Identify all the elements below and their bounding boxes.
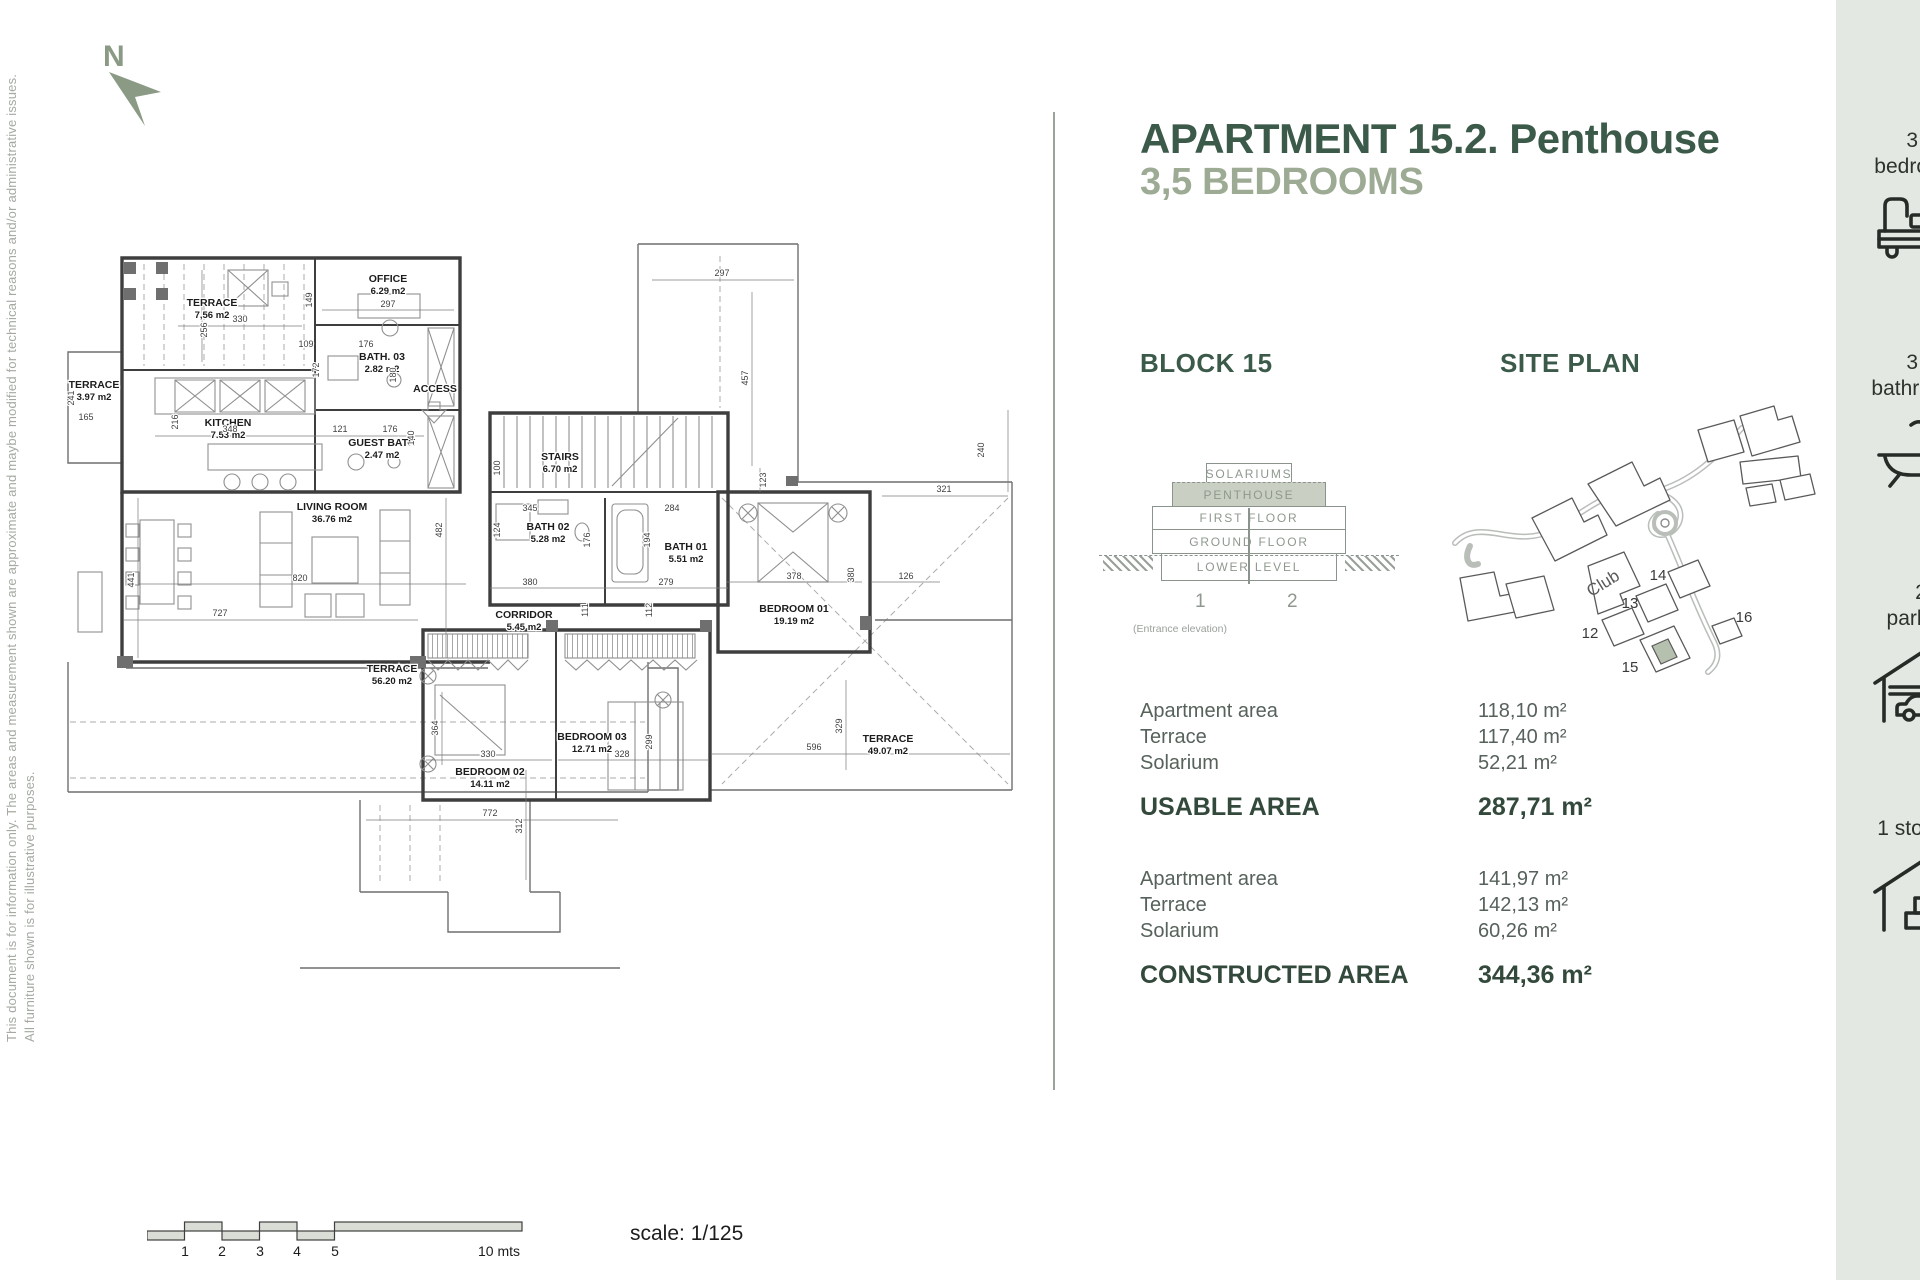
svg-text:194: 194 xyxy=(642,532,652,547)
svg-text:364: 364 xyxy=(430,720,440,735)
svg-text:140: 140 xyxy=(406,430,416,445)
storage-icon xyxy=(1869,854,1920,938)
table-row: Solarium 60,26 m² xyxy=(1140,918,1640,944)
scale-bar: 1234510 mts xyxy=(147,1208,547,1264)
site-roads xyxy=(1455,428,1742,672)
row-value: 117,40 m² xyxy=(1478,726,1567,749)
total-label: USABLE AREA xyxy=(1140,793,1478,822)
table-row: Apartment area 118,10 m² xyxy=(1140,698,1640,724)
svg-text:100: 100 xyxy=(492,460,502,475)
svg-text:380: 380 xyxy=(522,577,537,587)
row-value: 142,13 m² xyxy=(1478,894,1568,917)
svg-text:16: 16 xyxy=(1736,609,1753,626)
bathrooms-count: 3,5 xyxy=(1836,350,1920,376)
svg-text:123: 123 xyxy=(758,472,768,487)
north-arrow-icon xyxy=(109,72,161,126)
svg-text:15: 15 xyxy=(1622,659,1639,676)
parking-word: parking xyxy=(1836,606,1920,632)
row-label: Apartment area xyxy=(1140,868,1478,891)
svg-text:279: 279 xyxy=(658,577,673,587)
svg-text:BATH 01: BATH 01 xyxy=(665,541,708,553)
svg-text:256: 256 xyxy=(199,322,209,337)
svg-text:328: 328 xyxy=(614,749,629,759)
svg-text:BEDROOM 02: BEDROOM 02 xyxy=(455,766,525,778)
svg-text:56.20 m2: 56.20 m2 xyxy=(372,676,412,687)
scale-tick-labels: 1234510 mts xyxy=(181,1243,520,1259)
svg-text:5.45 m2: 5.45 m2 xyxy=(507,622,542,633)
svg-text:441: 441 xyxy=(126,572,136,587)
disclaimer-line-1: This document is for information only. T… xyxy=(4,74,19,1042)
bedrooms-count: 3,5 xyxy=(1836,128,1920,154)
svg-text:297: 297 xyxy=(380,299,395,309)
feature-bedrooms: 3,5 bedrooms xyxy=(1836,128,1920,264)
svg-text:5.51 m2: 5.51 m2 xyxy=(669,554,704,565)
svg-text:5: 5 xyxy=(331,1243,339,1259)
dimension-labels: 2563301492971091761721802163481211761402… xyxy=(66,268,986,834)
floor-plan: TERRACE7,56 m2OFFICE6.29 m2BATH. 032.82 … xyxy=(60,230,1040,1010)
svg-text:14: 14 xyxy=(1650,567,1667,584)
north-label: N xyxy=(103,40,125,73)
row-value: 52,21 m² xyxy=(1478,752,1557,775)
column-divider xyxy=(1053,112,1055,1090)
interior-walls xyxy=(122,258,728,800)
scale-ratio-text: scale: 1/125 xyxy=(630,1222,743,1246)
row-label: Terrace xyxy=(1140,726,1478,749)
svg-text:36.76 m2: 36.76 m2 xyxy=(312,514,352,525)
total-value: 344,36 m² xyxy=(1478,961,1592,990)
svg-text:312: 312 xyxy=(514,818,524,833)
svg-text:284: 284 xyxy=(664,503,679,513)
svg-text:CORRIDOR: CORRIDOR xyxy=(495,609,553,621)
row-label: Solarium xyxy=(1140,920,1478,943)
svg-text:345: 345 xyxy=(522,503,537,513)
svg-text:176: 176 xyxy=(358,339,373,349)
svg-text:10 mts: 10 mts xyxy=(478,1243,520,1259)
bed-icon xyxy=(1869,193,1920,259)
disclaimer-line-2: All furniture shown is for illustrative … xyxy=(22,771,37,1042)
svg-text:2.47 m2: 2.47 m2 xyxy=(365,450,400,461)
svg-text:457: 457 xyxy=(740,370,750,385)
constructed-area-total: CONSTRUCTED AREA 344,36 m² xyxy=(1140,958,1640,992)
row-value: 60,26 m² xyxy=(1478,920,1557,943)
svg-text:111: 111 xyxy=(580,603,590,617)
page: This document is for information only. T… xyxy=(0,0,1920,1280)
bedrooms-word: bedrooms xyxy=(1836,154,1920,180)
svg-text:TERRACE: TERRACE xyxy=(367,663,418,675)
scale-bar-segments xyxy=(147,1222,522,1240)
site-plan-map: Club1413121516 xyxy=(1440,388,1820,688)
block-elevation-diagram: SOLARIUMS PENTHOUSE FIRST FLOOR GROUND F… xyxy=(1099,463,1399,648)
elevation-caption: (Entrance elevation) xyxy=(1133,623,1227,635)
svg-text:6.70 m2: 6.70 m2 xyxy=(543,464,578,475)
svg-text:299: 299 xyxy=(644,734,654,749)
svg-text:14.11 m2: 14.11 m2 xyxy=(470,779,510,790)
svg-text:165: 165 xyxy=(78,412,93,422)
north-arrow: N xyxy=(95,34,185,130)
svg-text:1: 1 xyxy=(181,1243,189,1259)
parking-label: 2 parking xyxy=(1836,580,1920,633)
svg-text:BATH 02: BATH 02 xyxy=(527,521,570,533)
svg-text:149: 149 xyxy=(304,292,314,307)
level-penthouse: PENTHOUSE xyxy=(1172,482,1326,507)
row-label: Terrace xyxy=(1140,894,1478,917)
total-value: 287,71 m² xyxy=(1478,793,1592,822)
svg-text:12: 12 xyxy=(1582,625,1599,642)
bathrooms-word: bathrooms xyxy=(1836,376,1920,402)
svg-text:124: 124 xyxy=(492,522,502,537)
row-value: 118,10 m² xyxy=(1478,700,1567,723)
svg-text:330: 330 xyxy=(232,314,247,324)
site-plan-heading: SITE PLAN xyxy=(1500,348,1640,379)
furniture xyxy=(78,270,847,790)
svg-text:LIVING ROOM: LIVING ROOM xyxy=(297,501,368,513)
constructed-area-table: Apartment area 141,97 m² Terrace 142,13 … xyxy=(1140,866,1640,992)
svg-text:329: 329 xyxy=(834,718,844,733)
svg-text:380: 380 xyxy=(846,567,856,582)
svg-text:STAIRS: STAIRS xyxy=(541,451,579,463)
svg-text:5.28 m2: 5.28 m2 xyxy=(531,534,566,545)
dimension-lines xyxy=(124,270,1010,880)
svg-text:180: 180 xyxy=(388,367,398,382)
usable-area-total: USABLE AREA 287,71 m² xyxy=(1140,790,1640,824)
svg-text:176: 176 xyxy=(382,424,397,434)
feature-storage: 1 storage xyxy=(1836,816,1920,943)
title-block: APARTMENT 15.2. Penthouse 3,5 BEDROOMS xyxy=(1140,116,1719,204)
storage-label: 1 storage xyxy=(1836,816,1920,842)
unit-number-1: 1 xyxy=(1195,591,1206,613)
svg-text:330: 330 xyxy=(480,749,495,759)
bathrooms-label: 3,5 bathrooms xyxy=(1836,350,1920,403)
bathtub-icon xyxy=(1869,415,1920,489)
svg-text:2: 2 xyxy=(218,1243,226,1259)
bedrooms-label: 3,5 bedrooms xyxy=(1836,128,1920,181)
parking-count: 2 xyxy=(1836,580,1920,606)
svg-text:TERRACE: TERRACE xyxy=(863,733,914,745)
svg-text:482: 482 xyxy=(434,522,444,537)
svg-text:12.71 m2: 12.71 m2 xyxy=(572,744,612,755)
svg-text:727: 727 xyxy=(212,608,227,618)
svg-text:820: 820 xyxy=(292,573,307,583)
block-heading: BLOCK 15 xyxy=(1140,348,1273,379)
svg-text:13: 13 xyxy=(1622,595,1639,612)
table-row: Terrace 117,40 m² xyxy=(1140,724,1640,750)
total-label: CONSTRUCTED AREA xyxy=(1140,961,1478,990)
page-subtitle: 3,5 BEDROOMS xyxy=(1140,161,1719,204)
svg-text:BEDROOM 01: BEDROOM 01 xyxy=(759,603,829,615)
access-label: ACCESS xyxy=(413,383,457,395)
table-row: Solarium 52,21 m² xyxy=(1140,750,1640,776)
svg-text:BEDROOM 03: BEDROOM 03 xyxy=(557,731,627,743)
svg-text:7,56 m2: 7,56 m2 xyxy=(195,310,230,321)
svg-text:348: 348 xyxy=(222,424,237,434)
row-label: Apartment area xyxy=(1140,700,1478,723)
svg-text:321: 321 xyxy=(936,484,951,494)
svg-text:126: 126 xyxy=(898,571,913,581)
svg-text:172: 172 xyxy=(311,362,321,377)
svg-text:596: 596 xyxy=(806,742,821,752)
svg-text:241: 241 xyxy=(66,390,76,405)
svg-text:6.29 m2: 6.29 m2 xyxy=(371,286,406,297)
feature-bathrooms: 3,5 bathrooms xyxy=(1836,350,1920,494)
svg-text:109: 109 xyxy=(298,339,313,349)
storage-count: 1 storage xyxy=(1836,816,1920,842)
svg-text:TERRACE: TERRACE xyxy=(69,379,120,391)
svg-text:378: 378 xyxy=(786,571,801,581)
row-value: 141,97 m² xyxy=(1478,868,1568,891)
ground-hatch-right xyxy=(1345,556,1395,571)
svg-text:297: 297 xyxy=(714,268,729,278)
svg-text:216: 216 xyxy=(170,414,180,429)
features-sidebar: 3,5 bedrooms 3,5 bathrooms xyxy=(1836,0,1920,1280)
feature-parking: 2 parking xyxy=(1836,580,1920,734)
row-label: Solarium xyxy=(1140,752,1478,775)
level-solariums: SOLARIUMS xyxy=(1206,463,1292,484)
svg-text:3: 3 xyxy=(256,1243,264,1259)
unit-divider-line xyxy=(1248,508,1250,584)
svg-text:OFFICE: OFFICE xyxy=(369,273,408,285)
ground-hatch-left xyxy=(1103,556,1153,571)
table-row: Apartment area 141,97 m² xyxy=(1140,866,1640,892)
svg-text:3.97 m2: 3.97 m2 xyxy=(77,392,112,403)
svg-text:240: 240 xyxy=(976,442,986,457)
svg-text:772: 772 xyxy=(482,808,497,818)
svg-text:121: 121 xyxy=(332,424,347,434)
svg-text:TERRACE: TERRACE xyxy=(187,297,238,309)
table-row: Terrace 142,13 m² xyxy=(1140,892,1640,918)
svg-text:49.07 m2: 49.07 m2 xyxy=(868,746,908,757)
svg-text:176: 176 xyxy=(582,532,592,547)
site-buildings xyxy=(1460,406,1815,672)
svg-text:19.19 m2: 19.19 m2 xyxy=(774,616,814,627)
svg-text:4: 4 xyxy=(293,1243,301,1259)
page-title: APARTMENT 15.2. Penthouse xyxy=(1140,116,1719,161)
usable-area-table: Apartment area 118,10 m² Terrace 117,40 … xyxy=(1140,698,1640,824)
unit-number-2: 2 xyxy=(1287,591,1298,613)
svg-text:112: 112 xyxy=(644,603,654,617)
svg-text:BATH. 03: BATH. 03 xyxy=(359,351,405,363)
garage-icon xyxy=(1869,645,1920,729)
